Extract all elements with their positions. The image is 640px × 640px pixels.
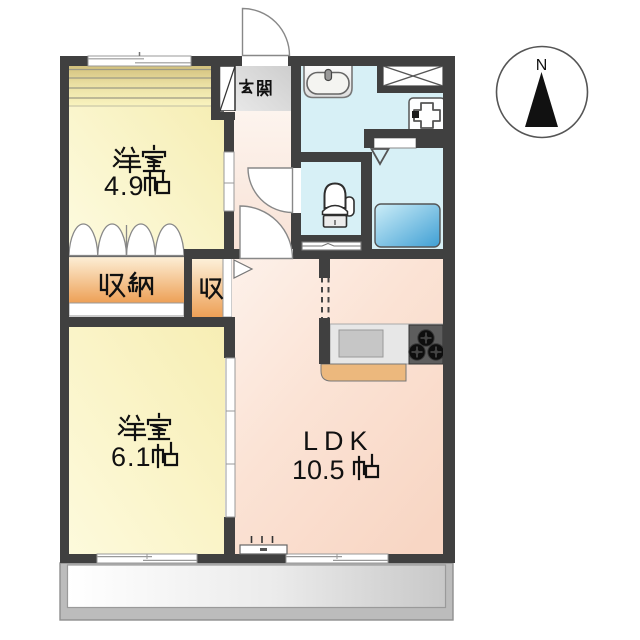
svg-text:N: N bbox=[536, 57, 548, 74]
svg-text:6.1: 6.1 bbox=[111, 442, 152, 472]
svg-text:4.9: 4.9 bbox=[104, 171, 145, 201]
svg-text:10.5: 10.5 bbox=[292, 455, 345, 485]
svg-text:LDK: LDK bbox=[303, 426, 374, 456]
